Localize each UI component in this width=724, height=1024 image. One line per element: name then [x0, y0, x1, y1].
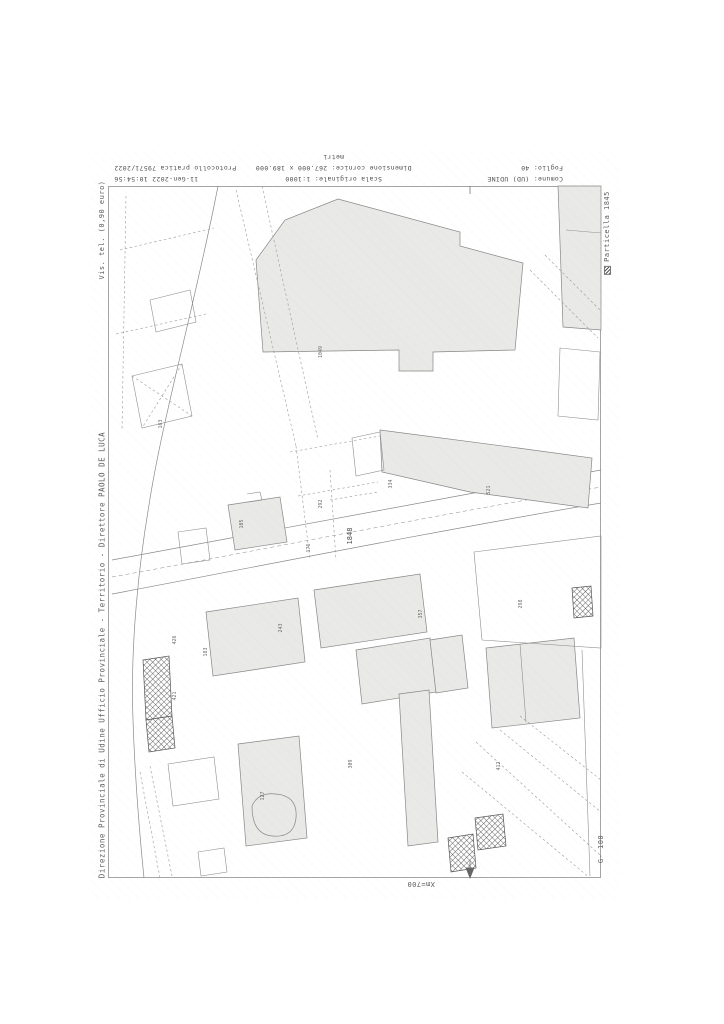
- svg-text:1049: 1049: [318, 346, 324, 358]
- parcel-labels-group: 1848 426 421 183 105 292 176 334 521 163…: [158, 346, 524, 801]
- svg-text:105: 105: [239, 519, 245, 528]
- header-row-1: Comune: (UD) UDINE Scala originale: 1:10…: [108, 173, 601, 184]
- buildings-group: [206, 186, 601, 846]
- x-grid-label: Xm=700: [407, 880, 435, 888]
- featured-parcel-label: 1848: [346, 528, 354, 545]
- bottom-code-label: G- 100: [597, 835, 605, 863]
- hatched-parcel: [572, 586, 593, 618]
- svg-text:163: 163: [158, 419, 164, 428]
- hatched-parcel: [143, 656, 172, 720]
- svg-text:298: 298: [518, 599, 524, 608]
- svg-text:292: 292: [318, 499, 324, 508]
- svg-text:412: 412: [496, 761, 502, 770]
- hatched-parcel: [475, 814, 506, 850]
- map-header: Comune: (UD) UDINE Scala originale: 1:10…: [108, 159, 601, 184]
- svg-text:127: 127: [260, 791, 266, 800]
- header-row-2: Foglio: 40 Dimensione cornice: 267.000 x…: [108, 151, 601, 173]
- dimensione-label: Dimensione cornice: 267.000 x 189.000 me…: [254, 151, 413, 173]
- svg-text:521: 521: [486, 485, 492, 494]
- hatch-swatch-icon: [604, 266, 611, 275]
- scala-label: Scala originale: 1:1000: [254, 173, 413, 184]
- protocollo-label: Protocollo pratica 79571/2022: [114, 162, 254, 173]
- hatched-parcel: [146, 716, 175, 752]
- svg-text:357: 357: [418, 609, 424, 618]
- svg-text:309: 309: [348, 759, 354, 768]
- parcel-legend-label: Particella 1845: [603, 191, 611, 262]
- svg-text:421: 421: [172, 691, 178, 700]
- scanned-map-sheet: 1848 426 421 183 105 292 176 334 521 163…: [0, 0, 724, 1024]
- office-line-label: Direzione Provinciale di Udine Ufficio P…: [98, 432, 107, 878]
- building-polygon: [256, 199, 523, 371]
- svg-text:243: 243: [278, 623, 284, 632]
- fee-note-label: Vis. tel. (0,90 euro): [98, 180, 106, 279]
- svg-text:176: 176: [306, 543, 312, 552]
- svg-text:334: 334: [388, 479, 394, 488]
- hatched-parcel: [448, 834, 476, 872]
- svg-text:426: 426: [172, 635, 178, 644]
- svg-text:183: 183: [203, 647, 209, 656]
- foglio-label: Foglio: 40: [413, 162, 563, 173]
- comune-label: Comune: (UD) UDINE: [413, 173, 563, 184]
- parcel-legend: Particella 1845: [603, 191, 611, 275]
- datetime-label: 11-Gen-2022 10:54:56: [114, 173, 254, 184]
